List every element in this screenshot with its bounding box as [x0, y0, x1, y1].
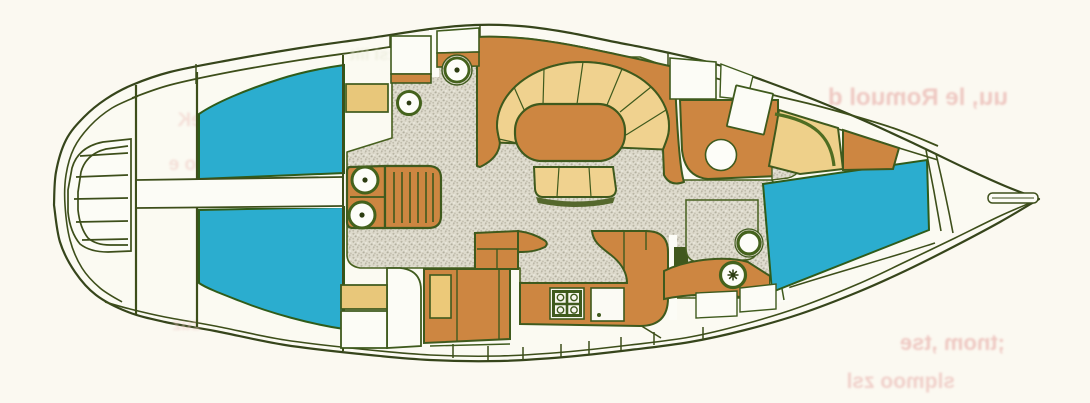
svg-text:slqmoo zsl: slqmoo zsl — [846, 370, 955, 393]
svg-text:uu, le Romuol d: uu, le Romuol d — [828, 84, 1008, 111]
svg-text:;tnom ,tse: ;tnom ,tse — [900, 330, 1005, 355]
svg-text:zuz: zuz — [173, 315, 200, 334]
